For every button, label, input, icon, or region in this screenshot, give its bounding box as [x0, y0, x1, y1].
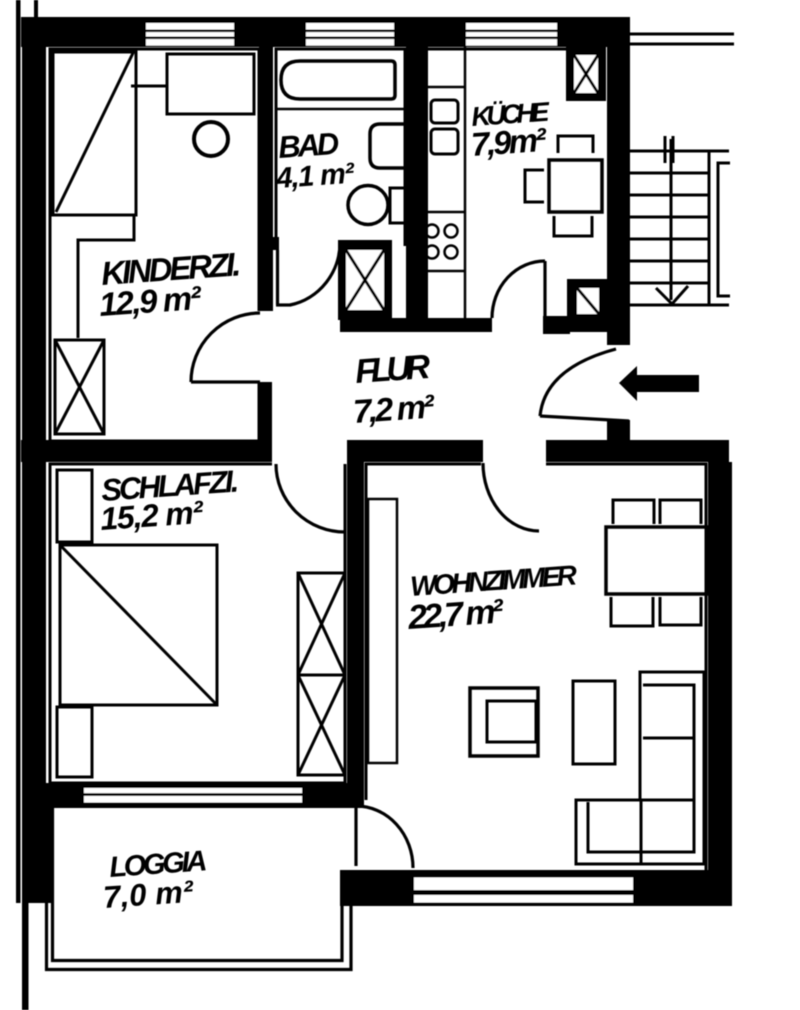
- svg-text:15,2 m²: 15,2 m²: [99, 494, 206, 537]
- svg-text:FLUR: FLUR: [354, 348, 432, 391]
- svg-text:7,0 m²: 7,0 m²: [102, 874, 195, 915]
- svg-text:22,7 m²: 22,7 m²: [406, 592, 506, 637]
- svg-text:4,1 m²: 4,1 m²: [274, 158, 356, 196]
- svg-text:12,9 m²: 12,9 m²: [98, 279, 203, 323]
- svg-text:7,2 m²: 7,2 m²: [352, 387, 436, 430]
- svg-text:7,9m²: 7,9m²: [470, 121, 548, 163]
